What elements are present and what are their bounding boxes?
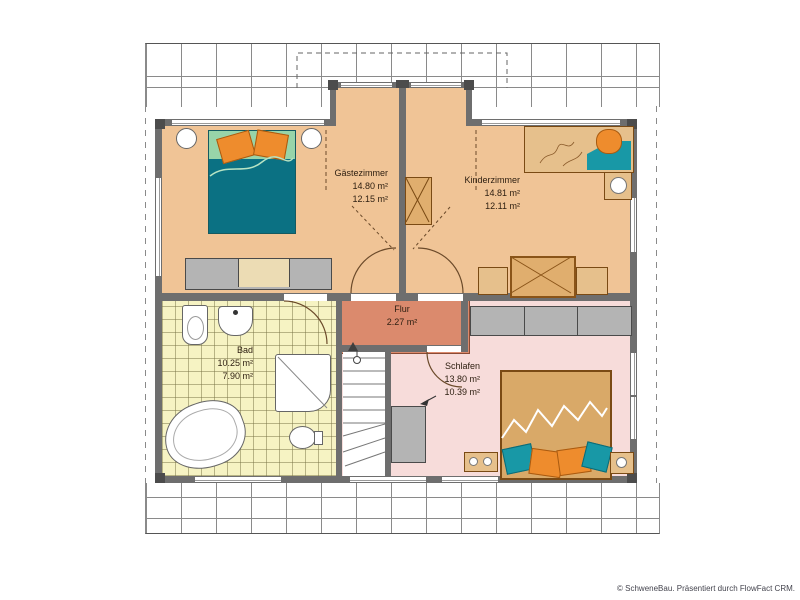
slope-dashed-line (413, 207, 450, 249)
slope-dashed-line (352, 206, 394, 250)
room-area-living: 10.39 m² (380, 386, 480, 399)
room-area-total: 10.25 m² (156, 357, 253, 370)
duvet-wave-line (502, 402, 607, 438)
copyright-text: © SchweneBau. Präsentiert durch FlowFact… (617, 584, 795, 593)
area-leader-arrowhead (420, 399, 429, 406)
room-name: Flur (352, 303, 452, 316)
room-label-bad: Bad 10.25 m² 7.90 m² (156, 344, 253, 383)
room-name: Kinderzimmer (408, 174, 520, 187)
room-label-kinderzimmer: Kinderzimmer 14.81 m² 12.11 m² (408, 174, 520, 213)
room-area-total: 2.27 m² (352, 316, 452, 329)
room-label-gaestezimmer: Gästezimmer 14.80 m² 12.15 m² (274, 167, 388, 206)
room-name: Bad (156, 344, 253, 357)
room-area-total: 14.80 m² (274, 180, 388, 193)
desk-cross-lines (511, 257, 571, 293)
room-name: Schlafen (380, 360, 480, 373)
stair-direction-arrow (348, 342, 358, 351)
floor-plan: Gästezimmer 14.80 m² 12.15 m² Kinderzimm… (0, 0, 800, 600)
room-area-total: 14.81 m² (408, 187, 520, 200)
annotation-overlay (0, 0, 800, 600)
dormer-roof-dashed-outline (297, 53, 507, 88)
door-swing-kinderzimmer (418, 248, 463, 293)
room-name: Gästezimmer (274, 167, 388, 180)
door-swing-gaestezimmer (351, 248, 396, 293)
lamp-symbol (354, 357, 361, 364)
shower-diagonal (278, 357, 327, 408)
room-area-total: 13.80 m² (380, 373, 480, 386)
room-area-living: 7.90 m² (156, 370, 253, 383)
door-swing-bad (284, 301, 327, 344)
room-area-living: 12.11 m² (408, 200, 520, 213)
bed-sketch-lines (540, 142, 582, 166)
room-area-living: 12.15 m² (274, 193, 388, 206)
stair-treads (343, 358, 385, 466)
room-label-flur: Flur 2.27 m² (352, 303, 452, 329)
room-label-schlafen: Schlafen 13.80 m² 10.39 m² (380, 360, 480, 399)
